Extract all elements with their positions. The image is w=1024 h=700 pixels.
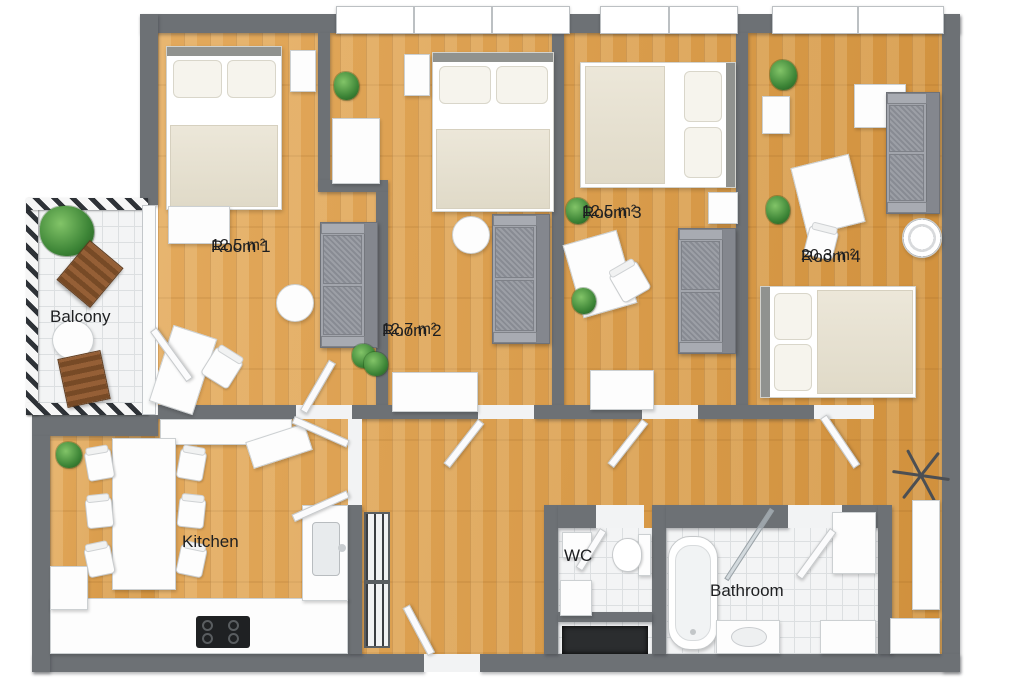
dresser-icon bbox=[890, 618, 940, 654]
wall-bottom-left bbox=[32, 654, 424, 672]
wall-right bbox=[942, 14, 960, 672]
room-name: Balcony bbox=[50, 306, 110, 328]
faucet-icon bbox=[338, 544, 346, 552]
duvet bbox=[170, 125, 278, 207]
side-table-icon bbox=[902, 218, 942, 258]
sofa-arm bbox=[679, 342, 723, 353]
sofa-cushion bbox=[495, 280, 534, 331]
radiator-divider bbox=[364, 580, 390, 584]
wall-room1-room2-upper bbox=[318, 33, 330, 186]
wall-wc-left bbox=[544, 505, 558, 654]
double-bed-icon bbox=[580, 62, 736, 188]
washing-machine-icon bbox=[820, 620, 876, 654]
headboard bbox=[726, 63, 735, 187]
plant-icon bbox=[766, 196, 790, 224]
sofa-cushion bbox=[889, 105, 924, 152]
wardrobe-icon bbox=[392, 372, 478, 412]
pillow bbox=[496, 66, 548, 104]
dresser-icon bbox=[590, 370, 654, 410]
balcony-railing-icon bbox=[26, 198, 38, 415]
cooktop-icon bbox=[196, 616, 250, 648]
wall-bottom-right bbox=[480, 654, 960, 672]
sofa-cushion bbox=[681, 241, 720, 290]
duvet bbox=[436, 129, 550, 209]
wall-kitchen-right bbox=[348, 505, 362, 654]
sofa-icon bbox=[320, 222, 378, 348]
toilet-icon bbox=[612, 538, 642, 572]
tub-drain bbox=[690, 629, 696, 635]
nightstand-icon bbox=[708, 192, 738, 224]
double-bed-icon bbox=[166, 46, 282, 210]
sofa-cushion bbox=[681, 292, 720, 341]
tub-basin bbox=[675, 545, 711, 641]
chair-icon bbox=[177, 497, 207, 530]
sofa-back bbox=[722, 229, 735, 353]
pillow bbox=[774, 344, 812, 391]
sofa-cushion bbox=[323, 286, 362, 335]
pillow bbox=[684, 127, 722, 178]
room-area: 20,3 m² bbox=[801, 246, 855, 267]
sofa-cushion bbox=[495, 227, 534, 278]
chair-icon bbox=[85, 497, 115, 530]
plant-icon bbox=[334, 72, 359, 100]
headboard bbox=[761, 287, 770, 397]
sofa-arm bbox=[493, 332, 537, 343]
sofa-back bbox=[536, 215, 549, 343]
window-room-2 bbox=[336, 6, 570, 34]
pillow bbox=[173, 60, 222, 98]
room-area: 12,7 m² bbox=[382, 320, 436, 341]
wall-corridor-d bbox=[698, 405, 814, 419]
room-name: Kitchen bbox=[182, 531, 239, 553]
room-name: Bathroom bbox=[710, 580, 784, 602]
sofa-icon bbox=[492, 214, 550, 344]
double-bed-icon bbox=[432, 52, 554, 212]
wall-wc-top bbox=[558, 505, 596, 528]
headboard bbox=[167, 47, 281, 56]
desk-icon bbox=[912, 500, 940, 610]
burner bbox=[202, 633, 213, 644]
sofa-cushion bbox=[323, 235, 362, 284]
room-area: 12,5 m² bbox=[211, 236, 265, 257]
cabinet-icon bbox=[832, 512, 876, 574]
pillow bbox=[227, 60, 276, 98]
burner bbox=[202, 620, 213, 631]
pillow bbox=[684, 71, 722, 122]
threshold bbox=[596, 505, 644, 528]
pillow bbox=[439, 66, 491, 104]
balcony-railing-icon bbox=[26, 403, 148, 415]
threshold bbox=[478, 405, 534, 419]
chair-icon bbox=[176, 448, 208, 482]
duvet bbox=[585, 66, 665, 184]
dining-table-icon bbox=[112, 438, 176, 590]
desk-icon bbox=[332, 118, 380, 184]
burner bbox=[228, 633, 239, 644]
window-room-3 bbox=[600, 6, 738, 34]
floor-plan: Room 1 12,5 m² Room 2 12,7 m² Room 3 12,… bbox=[0, 0, 1024, 700]
plant-icon bbox=[364, 352, 388, 376]
basin bbox=[731, 627, 767, 647]
room-area: 12,5 m² bbox=[582, 202, 636, 223]
sofa-arm bbox=[679, 229, 723, 240]
doormat-icon bbox=[562, 626, 648, 654]
wall-below-balcony bbox=[32, 415, 158, 436]
sofa-icon bbox=[886, 92, 940, 214]
wall-wc-bath-divider bbox=[652, 505, 666, 654]
round-table-icon bbox=[276, 284, 314, 322]
nightstand-icon bbox=[404, 54, 430, 96]
shelf-icon bbox=[762, 96, 790, 134]
window-room-4 bbox=[772, 6, 944, 34]
sofa-arm bbox=[321, 223, 365, 234]
burner bbox=[228, 620, 239, 631]
plant-icon bbox=[56, 442, 82, 468]
sofa-back bbox=[926, 93, 939, 213]
sofa-back bbox=[364, 223, 377, 347]
duvet bbox=[817, 290, 913, 394]
sofa-arm bbox=[887, 202, 927, 213]
threshold bbox=[348, 419, 362, 505]
vanity-sink-icon bbox=[716, 620, 780, 654]
room-name: WC bbox=[564, 545, 592, 567]
sofa-arm bbox=[887, 93, 927, 104]
kitchen-counter-icon bbox=[50, 566, 88, 610]
drying-rack-icon bbox=[892, 446, 950, 504]
round-table-icon bbox=[452, 216, 490, 254]
wall-kitchen-left bbox=[32, 436, 50, 672]
entrance-threshold bbox=[424, 654, 480, 672]
kitchen-sink-icon bbox=[312, 522, 340, 576]
pillow bbox=[774, 293, 812, 340]
double-bed-icon bbox=[760, 286, 916, 398]
nightstand-icon bbox=[290, 50, 316, 92]
radiator-icon bbox=[364, 512, 390, 648]
sofa-cushion bbox=[889, 154, 924, 201]
chair-icon bbox=[84, 448, 116, 482]
sofa-arm bbox=[493, 215, 537, 226]
hand-basin-icon bbox=[560, 580, 592, 616]
plant-icon bbox=[572, 288, 596, 314]
balcony-railing-icon bbox=[26, 198, 148, 210]
wall-left-upper bbox=[140, 14, 158, 205]
sofa-icon bbox=[678, 228, 736, 354]
headboard bbox=[433, 53, 553, 62]
plant-icon bbox=[770, 60, 797, 90]
